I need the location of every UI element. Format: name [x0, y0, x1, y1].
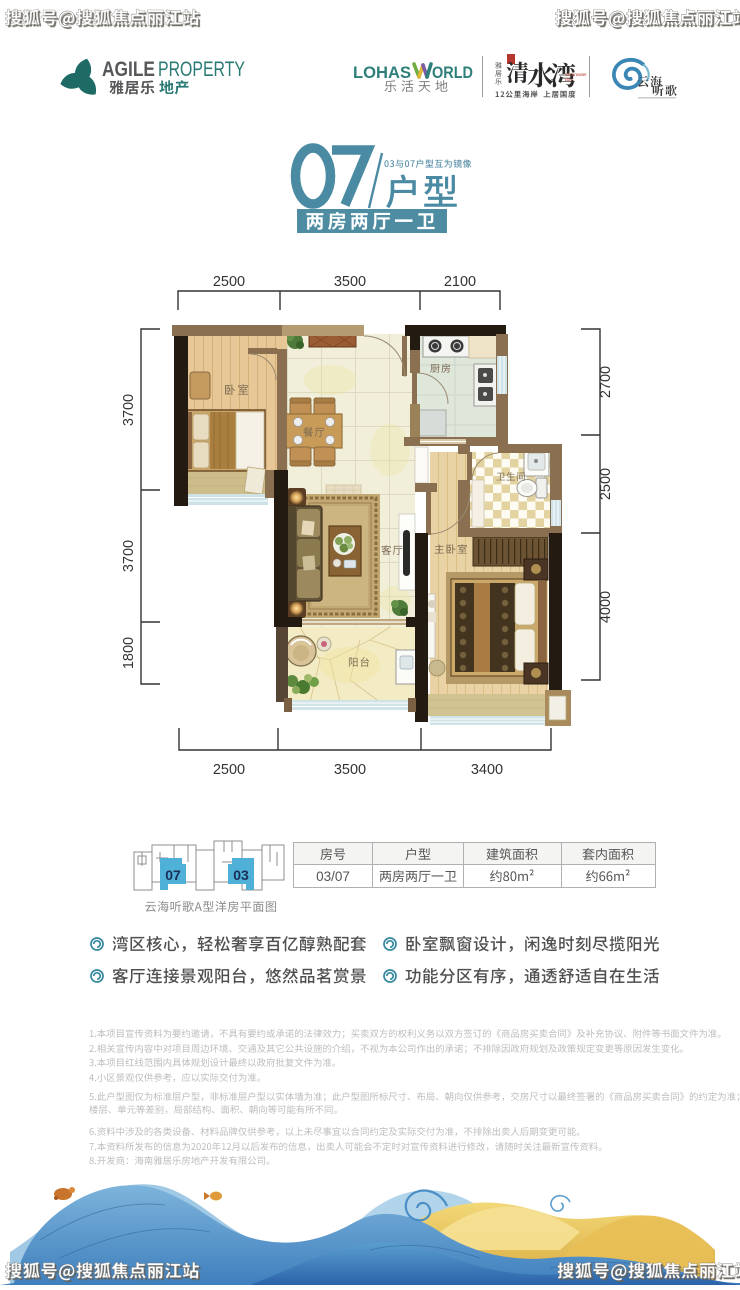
svg-text:3500: 3500 [334, 762, 366, 778]
svg-text:3700: 3700 [121, 540, 137, 572]
svg-text:03: 03 [233, 867, 249, 883]
svg-text:AGILE: AGILE [102, 58, 155, 81]
svg-text:2700: 2700 [598, 366, 614, 398]
svg-text:2500: 2500 [213, 274, 245, 290]
svg-text:3500: 3500 [334, 274, 366, 290]
svg-text:2100: 2100 [444, 274, 476, 290]
svg-text:ORLD: ORLD [432, 63, 473, 82]
svg-text:3400: 3400 [471, 762, 503, 778]
svg-text:4000: 4000 [598, 591, 614, 623]
svg-text:03/07: 03/07 [316, 869, 350, 884]
svg-text:2500: 2500 [598, 468, 614, 500]
svg-text:3700: 3700 [121, 394, 137, 426]
svg-text:1800: 1800 [121, 637, 137, 669]
svg-text:Bay: Bay [565, 77, 574, 82]
svg-text:07: 07 [165, 867, 181, 883]
svg-text:LOHAS: LOHAS [353, 63, 411, 82]
svg-text:2500: 2500 [213, 762, 245, 778]
svg-text:PROPERTY: PROPERTY [158, 58, 245, 81]
